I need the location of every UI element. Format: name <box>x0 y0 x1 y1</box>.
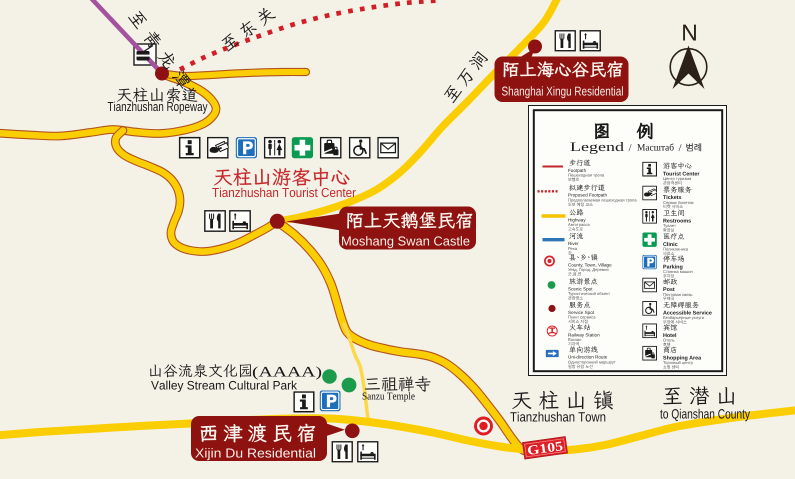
svg-text:티켓 서비스: 티켓 서비스 <box>663 204 683 209</box>
svg-text:보행로: 보행로 <box>568 177 580 182</box>
svg-text:쇼핑 센터: 쇼핑 센터 <box>663 364 679 369</box>
svg-text:일방 유람 노선: 일방 유람 노선 <box>568 364 593 369</box>
svg-text:도보 예정 코스: 도보 예정 코스 <box>568 202 593 207</box>
svg-text:기차역: 기차역 <box>568 342 580 347</box>
svg-text:우체국: 우체국 <box>663 296 675 301</box>
svg-text:의료소: 의료소 <box>663 251 675 256</box>
svg-text:주차장: 주차장 <box>663 273 675 278</box>
svg-text:관광객센터: 관광객센터 <box>663 180 682 185</box>
svg-text:서비스 지점: 서비스 지점 <box>568 319 588 324</box>
svg-text:화장실: 화장실 <box>663 228 675 233</box>
svg-text:무장애 서비스: 무장애 서비스 <box>663 320 687 325</box>
svg-text:호텔: 호텔 <box>663 342 671 347</box>
svg-text:고속도로: 고속도로 <box>568 227 583 232</box>
svg-text:군,읍,면: 군,읍,면 <box>568 272 582 277</box>
svg-text:관광명소: 관광명소 <box>568 296 583 301</box>
